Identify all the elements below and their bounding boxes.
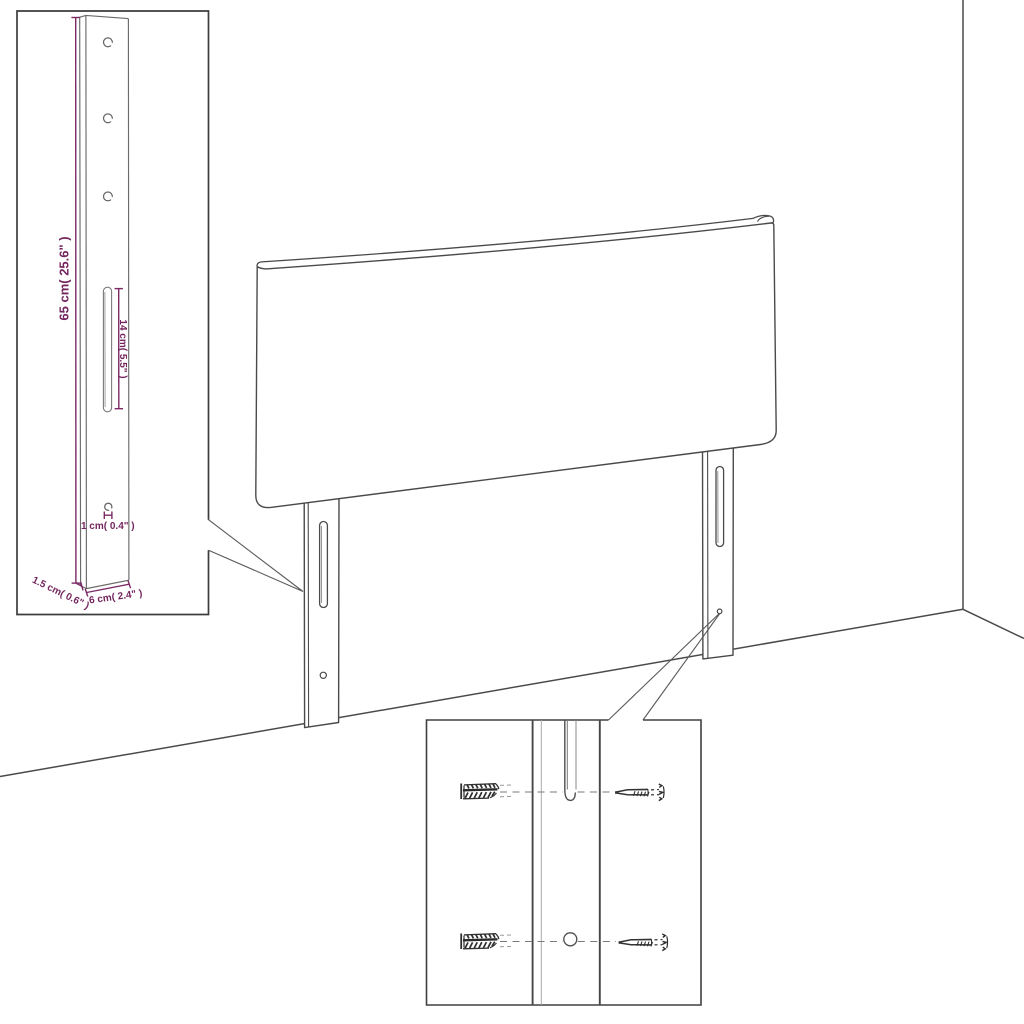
svg-text:1 cm( 0.4" ): 1 cm( 0.4" ) [81, 521, 135, 532]
svg-text:65 cm( 25.6" ): 65 cm( 25.6" ) [57, 236, 72, 320]
svg-text:14 cm( 5.5" ): 14 cm( 5.5" ) [117, 319, 128, 378]
